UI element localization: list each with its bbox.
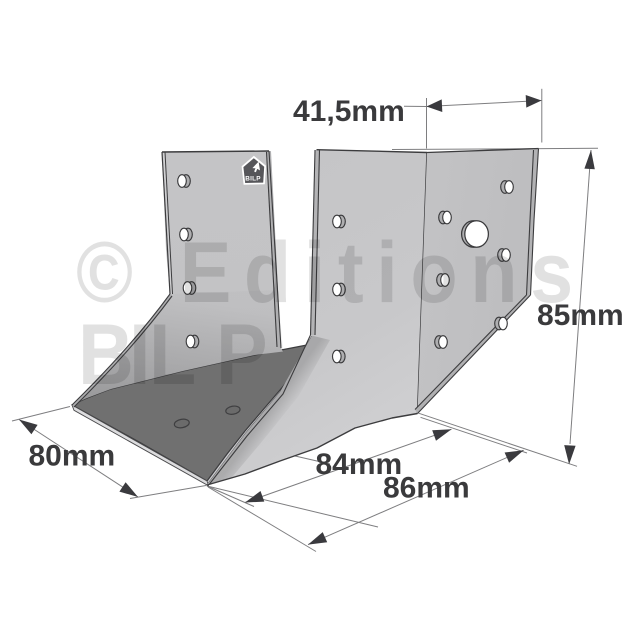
svg-text:L: L xyxy=(149,307,196,403)
svg-text:BILP: BILP xyxy=(245,176,261,183)
svg-text:B: B xyxy=(78,307,134,403)
svg-text:41,5mm: 41,5mm xyxy=(293,95,405,128)
svg-text:P: P xyxy=(216,307,268,403)
svg-text:86mm: 86mm xyxy=(383,472,470,505)
svg-text:80mm: 80mm xyxy=(29,440,116,473)
svg-text:I: I xyxy=(129,307,151,403)
